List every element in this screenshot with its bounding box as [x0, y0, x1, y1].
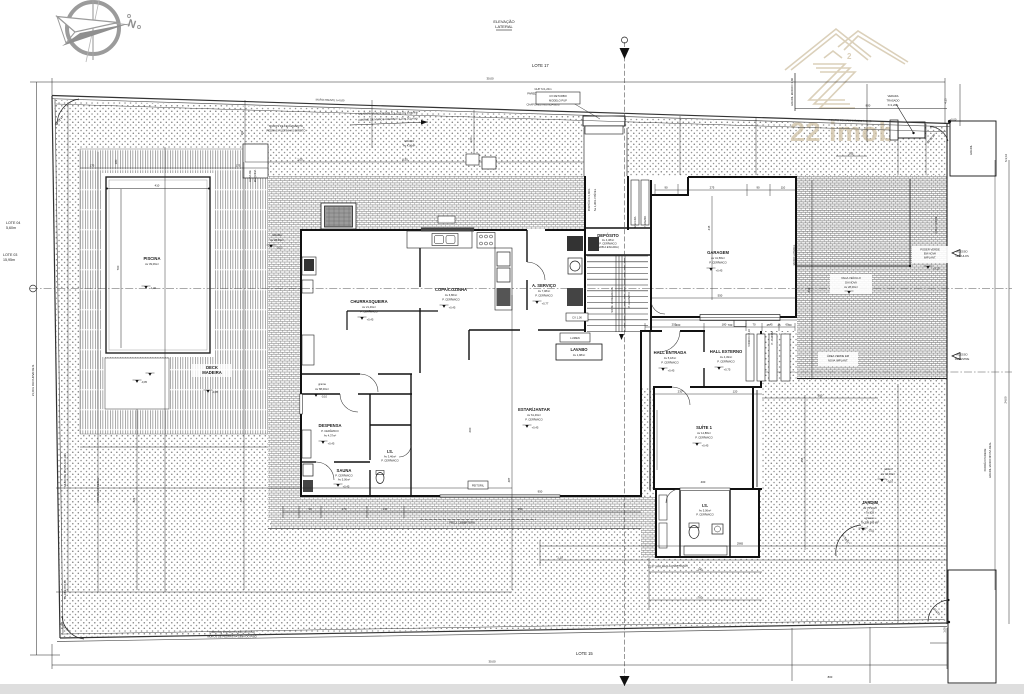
svg-text:DESPENSA: DESPENSA	[318, 423, 341, 428]
svg-text:Av 61,46m²: Av 61,46m²	[527, 413, 541, 417]
svg-text:30,00: 30,00	[489, 660, 496, 664]
svg-text:-0,05: -0,05	[141, 380, 148, 384]
svg-text:4,15: 4,15	[944, 98, 948, 104]
svg-text:CX 1,00: CX 1,00	[572, 316, 582, 320]
svg-text:grama: grama	[318, 382, 326, 386]
svg-text:SUÍTE 1: SUÍTE 1	[696, 425, 712, 430]
svg-text:+0,45: +0,45	[668, 369, 675, 373]
svg-text:TALUDE h=0,50: TALUDE h=0,50	[63, 580, 67, 600]
svg-text:GRAMA: GRAMA	[404, 139, 414, 143]
svg-text:+0,77: +0,77	[542, 302, 549, 306]
svg-text:DEPÓSITO: DEPÓSITO	[597, 233, 619, 238]
svg-text:HALL ENTRADA: HALL ENTRADA	[654, 350, 687, 355]
svg-text:90: 90	[756, 186, 760, 190]
svg-text:Ta 128: Ta 128	[866, 511, 875, 515]
svg-text:LOTE 04: LOTE 04	[6, 221, 20, 225]
svg-text:60: 60	[788, 323, 792, 327]
svg-text:DA NOVA: DA NOVA	[845, 281, 857, 285]
svg-text:ÁREA VERDE: ÁREA VERDE	[934, 216, 938, 233]
svg-text:MUROS DE FECHAMENTO: MUROS DE FECHAMENTO	[269, 124, 303, 128]
svg-text:MURO LATERAL: MURO LATERAL	[792, 244, 796, 265]
svg-text:Av 6,86m²: Av 6,86m²	[445, 293, 457, 297]
svg-text:+0,45: +0,45	[716, 269, 723, 273]
svg-text:Sa 1,36m VISÍVEL: Sa 1,36m VISÍVEL	[593, 188, 597, 211]
svg-text:COPA/COZINHA: COPA/COZINHA	[435, 287, 467, 292]
svg-text:P. CERÂMICO: P. CERÂMICO	[535, 294, 552, 298]
svg-text:90: 90	[308, 507, 312, 511]
svg-text:265: 265	[849, 152, 854, 156]
svg-text:JARDIM: JARDIM	[862, 500, 879, 505]
svg-text:CHURRASQUEIRA: CHURRASQUEIRA	[350, 299, 387, 304]
svg-text:120: 120	[733, 390, 738, 394]
svg-text:200: 200	[676, 323, 681, 327]
svg-text:-1,40: -1,40	[150, 286, 157, 290]
svg-text:1,00: 1,00	[943, 627, 947, 633]
svg-text:2,00: 2,00	[469, 137, 473, 143]
svg-text:P. CERÂMICO: P. CERÂMICO	[442, 298, 459, 302]
svg-text:15,95m: 15,95m	[3, 258, 15, 262]
svg-text:CX RETURBO: CX RETURBO	[549, 94, 567, 98]
svg-text:GARAGEM: GARAGEM	[707, 250, 729, 255]
svg-text:ACESSO: ACESSO	[956, 250, 967, 254]
svg-text:550: 550	[718, 294, 723, 298]
svg-text:175: 175	[236, 164, 241, 168]
svg-text:90: 90	[664, 186, 668, 190]
svg-text:180: 180	[114, 159, 118, 164]
svg-text:VIDRO DE DIVISA h=1,80m DO PIS: VIDRO DE DIVISA h=1,80m DO PISO	[209, 630, 255, 634]
svg-text:P. CERÂMICO: P. CERÂMICO	[599, 242, 616, 246]
svg-text:140: 140	[698, 568, 703, 572]
svg-text:130: 130	[383, 507, 388, 511]
svg-text:GRAMA: GRAMA	[272, 233, 282, 237]
svg-text:+0,45: +0,45	[532, 426, 539, 430]
svg-text:21,00m DA CURVA DE N.: 21,00m DA CURVA DE N.	[31, 364, 35, 396]
svg-text:+0,75: +0,75	[724, 368, 731, 372]
svg-text:h=2,10: h=2,10	[1004, 153, 1008, 162]
svg-text:EM NOVA: EM NOVA	[924, 252, 936, 256]
svg-text:Av 28,00m²: Av 28,00m²	[844, 285, 858, 289]
svg-text:170: 170	[342, 507, 347, 511]
svg-text:Av 28,06m²: Av 28,06m²	[270, 238, 284, 242]
svg-text:ESTAR/JANTAR: ESTAR/JANTAR	[518, 407, 550, 412]
svg-text:HALL EXTERNO: HALL EXTERNO	[710, 349, 743, 354]
svg-text:CASA DE: CASA DE	[248, 170, 252, 182]
svg-text:Av 5,18m²: Av 5,18m²	[664, 356, 676, 360]
svg-text:Av 14,88m²: Av 14,88m²	[697, 431, 711, 435]
svg-text:5,60m: 5,60m	[6, 226, 16, 230]
svg-text:-0,10: -0,10	[868, 529, 875, 533]
svg-text:PEDESTRE: PEDESTRE	[955, 357, 970, 361]
svg-text:PEDRAS FILETINHAS DIREITO: PEDRAS FILETINHAS DIREITO	[267, 129, 306, 133]
svg-text:+0,45: +0,45	[702, 444, 709, 448]
svg-text:P. JARDIM: P. JARDIM	[770, 331, 774, 345]
svg-text:415: 415	[707, 225, 711, 230]
svg-text:P. CERÂMICO: P. CERÂMICO	[696, 513, 713, 517]
svg-text:GRADIL MURO h=1,80: GRADIL MURO h=1,80	[790, 78, 794, 106]
svg-text:255: 255	[672, 323, 677, 327]
svg-text:VIDRO h=2,10: VIDRO h=2,10	[747, 329, 751, 347]
svg-text:487: 487	[507, 477, 511, 482]
svg-text:I.S.: I.S.	[387, 449, 393, 454]
svg-text:MADEIRA: MADEIRA	[202, 370, 222, 375]
svg-text:+0,45: +0,45	[367, 318, 374, 322]
svg-text:230: 230	[678, 390, 683, 394]
svg-text:jardim: jardim	[883, 467, 892, 471]
svg-text:P. CERÂMICO: P. CERÂMICO	[525, 418, 542, 422]
svg-text:425: 425	[239, 497, 243, 502]
svg-text:-0,10: -0,10	[276, 246, 283, 250]
svg-text:P. CERÂMICO: P. CERÂMICO	[717, 360, 734, 364]
svg-text:P. CERÂMICO: P. CERÂMICO	[381, 459, 398, 463]
svg-text:1,05: 1,05	[297, 158, 303, 162]
svg-text:8,50: 8,50	[402, 158, 408, 162]
svg-text:LOTE 17: LOTE 17	[532, 63, 549, 68]
svg-text:Av 41,58m²: Av 41,58m²	[711, 256, 725, 260]
svg-text:-0,10: -0,10	[321, 395, 328, 399]
svg-text:400: 400	[701, 480, 706, 484]
svg-text:+0,45: +0,45	[328, 442, 335, 446]
svg-text:P. CERÂMICO: P. CERÂMICO	[335, 474, 352, 478]
svg-text:LAVABO: LAVABO	[570, 347, 588, 352]
svg-text:VAGA VEÍCULO: VAGA VEÍCULO	[841, 276, 861, 280]
svg-text:800: 800	[866, 104, 871, 108]
svg-text:Av 5,06m²: Av 5,06m²	[699, 509, 711, 513]
svg-text:ACESSO: ACESSO	[956, 353, 967, 357]
svg-text:60: 60	[785, 323, 789, 327]
svg-text:TRASADO: TRASADO	[887, 99, 900, 103]
svg-text:Ta 308 995 45°: Ta 308 995 45°	[861, 521, 879, 525]
svg-text:ÁREA VERDE EM: ÁREA VERDE EM	[827, 354, 850, 358]
svg-text:IMPLANT.: IMPLANT.	[924, 256, 936, 260]
svg-text:-0,05: -0,05	[212, 390, 219, 394]
svg-text:+0,45: +0,45	[449, 306, 456, 310]
svg-text:SAUNA: SAUNA	[337, 468, 352, 473]
svg-text:PISCINA: PISCINA	[144, 256, 161, 261]
svg-text:24,00: 24,00	[1004, 396, 1008, 403]
svg-text:PEITORIL: PEITORIL	[472, 484, 485, 488]
svg-text:PROJ. COBERTURA: PROJ. COBERTURA	[449, 521, 475, 525]
svg-text:2965: 2965	[737, 542, 744, 546]
svg-text:(SOB A ESCADA): (SOB A ESCADA)	[597, 245, 619, 249]
svg-text:P. CERÂMICO: P. CERÂMICO	[321, 429, 338, 433]
svg-text:gramas: gramas	[866, 516, 876, 520]
svg-text:LOTE 03: LOTE 03	[3, 253, 17, 257]
svg-text:-0,10: -0,10	[887, 480, 894, 484]
svg-text:LATERAL: LATERAL	[495, 24, 513, 29]
svg-text:GRADIL MURO DIVISA REAL: GRADIL MURO DIVISA REAL	[988, 441, 992, 478]
svg-text:LUMEN: LUMEN	[570, 336, 579, 340]
svg-text:Av 21,46m²: Av 21,46m²	[362, 305, 376, 309]
svg-text:P. CERÂMICO: P. CERÂMICO	[695, 436, 712, 440]
svg-text:Av 39,06m²: Av 39,06m²	[145, 262, 159, 266]
svg-text:Av 88,00m²: Av 88,00m²	[315, 387, 329, 391]
svg-text:70: 70	[752, 323, 756, 327]
svg-text:193: 193	[240, 130, 244, 135]
svg-text:SOBE 16 DEGRAUS: SOBE 16 DEGRAUS	[610, 287, 614, 312]
svg-text:45: 45	[769, 323, 773, 327]
svg-text:Av 42,00m²: Av 42,00m²	[881, 472, 895, 476]
svg-text:ESCADA: ESCADA	[633, 216, 637, 227]
svg-text:P. CERÂMICO: P. CERÂMICO	[661, 361, 678, 365]
svg-text:P. GRANITO: P. GRANITO	[627, 292, 631, 307]
svg-text:Av 4,49m²: Av 4,49m²	[720, 355, 732, 359]
svg-text:Av 75,16m²: Av 75,16m²	[863, 506, 877, 510]
svg-text:430: 430	[652, 437, 656, 442]
svg-text:A. SERVIÇO: A. SERVIÇO	[532, 283, 557, 288]
svg-text:700: 700	[116, 265, 120, 270]
svg-text:275: 275	[710, 186, 715, 190]
svg-text:MÁQUINA: MÁQUINA	[253, 170, 257, 183]
svg-text:415: 415	[800, 457, 804, 462]
svg-text:VEÍCULOS: VEÍCULOS	[955, 254, 969, 258]
svg-text:Av 7,08m²: Av 7,08m²	[538, 289, 550, 293]
svg-text:GUP h=1,20m: GUP h=1,20m	[534, 87, 552, 91]
svg-text:PODER VERDE: PODER VERDE	[920, 248, 940, 252]
svg-text:Av 1,98m²: Av 1,98m²	[573, 353, 585, 357]
svg-text:MUROS DE PEDRAS h=1,80m DO PIS: MUROS DE PEDRAS h=1,80m DO PISO	[207, 635, 257, 639]
svg-text:+0,15: +0,15	[933, 267, 940, 271]
svg-text:180: 180	[722, 323, 727, 327]
svg-text:30,00: 30,00	[487, 77, 494, 81]
svg-text:410: 410	[155, 184, 160, 188]
svg-text:950: 950	[518, 507, 523, 511]
svg-text:175: 175	[90, 164, 95, 168]
svg-text:223: 223	[132, 497, 136, 502]
svg-text:800: 800	[807, 287, 811, 292]
svg-text:1,10: 1,10	[557, 556, 563, 560]
svg-text:Av 4,06m²: Av 4,06m²	[403, 144, 415, 148]
svg-text:600: 600	[468, 427, 472, 432]
svg-text:LOTE 15: LOTE 15	[576, 651, 593, 656]
svg-text:P. RAMPA: P. RAMPA	[643, 216, 647, 229]
svg-text:VERADA: VERADA	[887, 94, 898, 98]
svg-text:700: 700	[698, 596, 703, 600]
svg-text:600: 600	[818, 394, 823, 398]
svg-text:Av 3,46m²: Av 3,46m²	[384, 455, 396, 459]
svg-text:800: 800	[828, 675, 833, 679]
svg-text:GRADIL: GRADIL	[969, 144, 973, 155]
svg-text:2: 2	[847, 52, 852, 61]
svg-text:110: 110	[781, 186, 786, 190]
svg-text:950: 950	[538, 490, 543, 494]
svg-text:NOVA IMPLANT.: NOVA IMPLANT.	[828, 359, 848, 363]
svg-text:700: 700	[728, 323, 733, 327]
svg-text:Av 5,06m²: Av 5,06m²	[338, 478, 350, 482]
svg-text:MODELO PUP: MODELO PUP	[549, 99, 567, 103]
svg-text:Av 4,38m²: Av 4,38m²	[602, 238, 614, 242]
svg-text:MURO DE DIVISA h=2,10m: MURO DE DIVISA h=2,10m	[63, 453, 67, 487]
svg-text:I.S.: I.S.	[702, 503, 708, 508]
svg-text:Av 4,37m²: Av 4,37m²	[324, 434, 336, 438]
